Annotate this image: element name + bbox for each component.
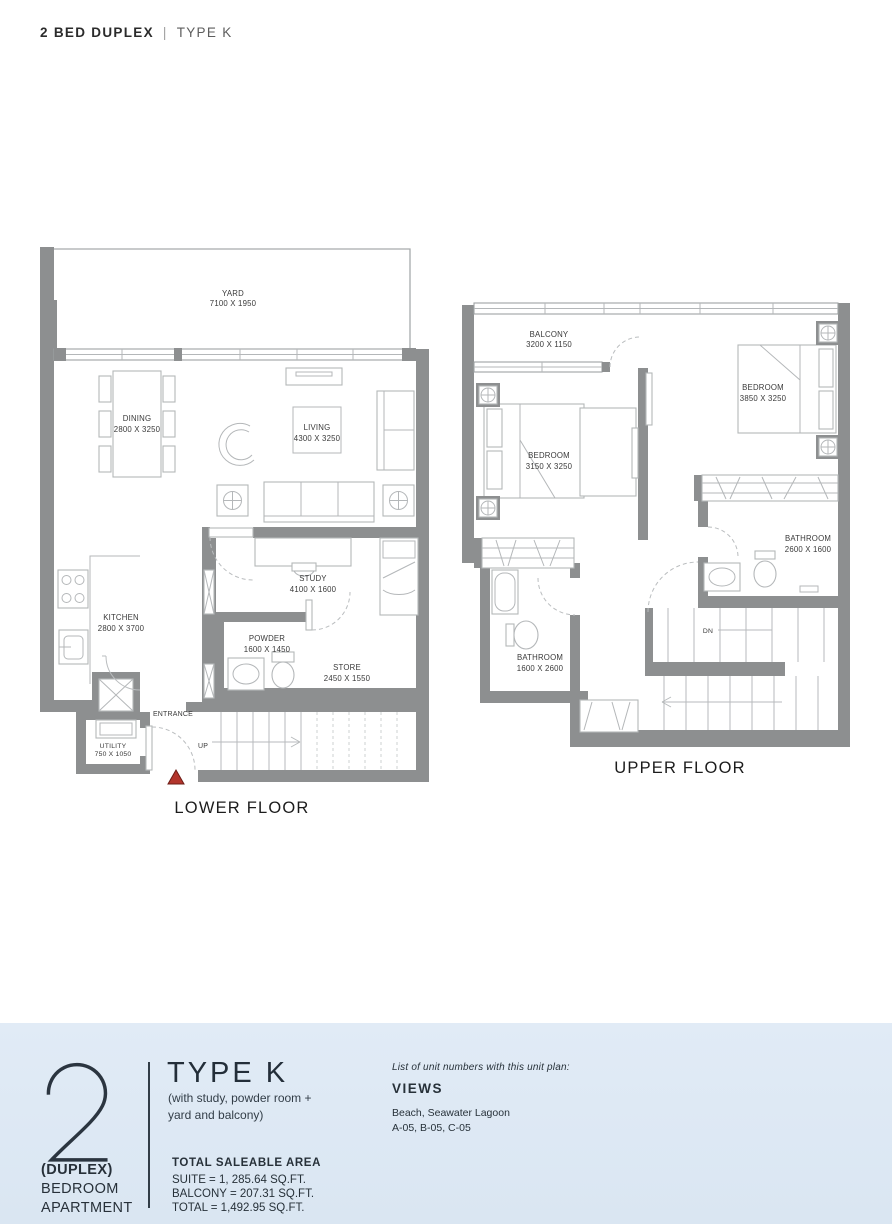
unit-duplex-label: (DUPLEX)	[41, 1161, 133, 1180]
balcony-label: BALCONY	[530, 330, 569, 339]
bathroom-left-fixtures	[492, 570, 575, 649]
balcony-area-line: BALCONY = 207.31 SQ.FT.	[172, 1187, 321, 1201]
utility-label: UTILITY	[100, 743, 127, 750]
entrance-door	[146, 726, 195, 770]
lower-floor-plan: YARD 7100 X 1950 DINING 2800 X 3250 LIVI…	[40, 243, 432, 828]
kitchen-fixtures	[58, 556, 140, 690]
utility-fixtures	[96, 720, 136, 738]
type-note: (with study, powder room + yard and balc…	[168, 1090, 312, 1123]
entrance-marker	[168, 770, 184, 784]
lower-floor-caption: LOWER FLOOR	[142, 799, 342, 818]
type-note-line1: (with study, powder room +	[168, 1090, 312, 1107]
bedroom-right-label: BEDROOM	[742, 383, 784, 392]
bathroom-right-label: BATHROOM	[785, 534, 831, 543]
views-block: List of unit numbers with this unit plan…	[392, 1062, 570, 1136]
bedroom-right-dims: 3850 X 3250	[740, 394, 787, 403]
stairs-up	[212, 712, 397, 770]
study-label: STUDY	[299, 574, 327, 583]
title-separator: |	[163, 25, 168, 40]
hallway-door	[648, 562, 698, 612]
yard-label: YARD	[222, 289, 244, 298]
upper-floor-plan: BALCONY 3200 X 1150 BEDROOM 3150 X 3250 …	[460, 296, 852, 796]
shaft-boxes	[92, 570, 214, 718]
stairs-down-label: DN	[703, 628, 713, 635]
bathroom-right-dims: 2600 X 1600	[785, 545, 832, 554]
bedroom-left-furniture	[484, 373, 652, 498]
lower-windows	[54, 348, 416, 361]
living-set	[217, 368, 414, 522]
views-heading: VIEWS	[392, 1081, 570, 1096]
balcony-dims: 3200 X 1150	[526, 340, 572, 349]
dining-dims: 2800 X 3250	[114, 425, 161, 434]
dining-set	[99, 371, 175, 477]
powder-dims: 1600 X 1450	[244, 645, 291, 654]
kitchen-label: KITCHEN	[103, 613, 139, 622]
floorplan-page: 2 BED DUPLEX | TYPE K	[0, 0, 892, 1224]
views-line2: A-05, B-05, C-05	[392, 1121, 570, 1136]
store-label: STORE	[333, 663, 361, 672]
saleable-area: TOTAL SALEABLE AREA SUITE = 1, 285.64 SQ…	[172, 1156, 321, 1215]
views-intro: List of unit numbers with this unit plan…	[392, 1062, 570, 1073]
type-note-line2: yard and balcony)	[168, 1107, 312, 1124]
unit-count-numeral	[42, 1058, 114, 1168]
unit-apartment-label: APARTMENT	[41, 1199, 133, 1218]
footer-divider	[148, 1062, 150, 1208]
dining-label: DINING	[123, 414, 152, 423]
views-line1: Beach, Seawater Lagoon	[392, 1106, 570, 1121]
unit-bedroom-label: BEDROOM	[41, 1180, 133, 1199]
suite-area-line: SUITE = 1, 285.64 SQ.FT.	[172, 1173, 321, 1187]
yard-dims: 7100 X 1950	[210, 299, 257, 308]
bedroom-left-label: BEDROOM	[528, 451, 570, 460]
page-title-main: 2 BED DUPLEX	[40, 25, 154, 40]
bedroom-left-dims: 3150 X 3250	[526, 462, 573, 471]
powder-label: POWDER	[249, 634, 285, 643]
upper-floor-caption: UPPER FLOOR	[580, 759, 780, 778]
utility-dims: 750 X 1050	[95, 751, 132, 758]
living-label: LIVING	[304, 423, 331, 432]
kitchen-dims: 2800 X 3700	[98, 624, 145, 633]
page-title-sub: TYPE K	[177, 25, 233, 40]
page-title: 2 BED DUPLEX | TYPE K	[40, 25, 233, 40]
entrance-label: ENTRANCE	[153, 711, 193, 718]
bathroom-left-label: BATHROOM	[517, 653, 563, 662]
total-area-line: TOTAL = 1,492.95 SQ.FT.	[172, 1201, 321, 1215]
stairs-up-label: UP	[198, 743, 208, 750]
bathroom-left-dims: 1600 X 2600	[517, 664, 564, 673]
saleable-area-heading: TOTAL SALEABLE AREA	[172, 1156, 321, 1170]
study-furniture	[209, 528, 418, 615]
store-dims: 2450 X 1550	[324, 674, 371, 683]
unit-description: (DUPLEX) BEDROOM APARTMENT	[41, 1161, 133, 1218]
living-dims: 4300 X 3250	[294, 434, 341, 443]
study-dims: 4100 X 1600	[290, 585, 337, 594]
type-title: TYPE K	[167, 1057, 288, 1090]
